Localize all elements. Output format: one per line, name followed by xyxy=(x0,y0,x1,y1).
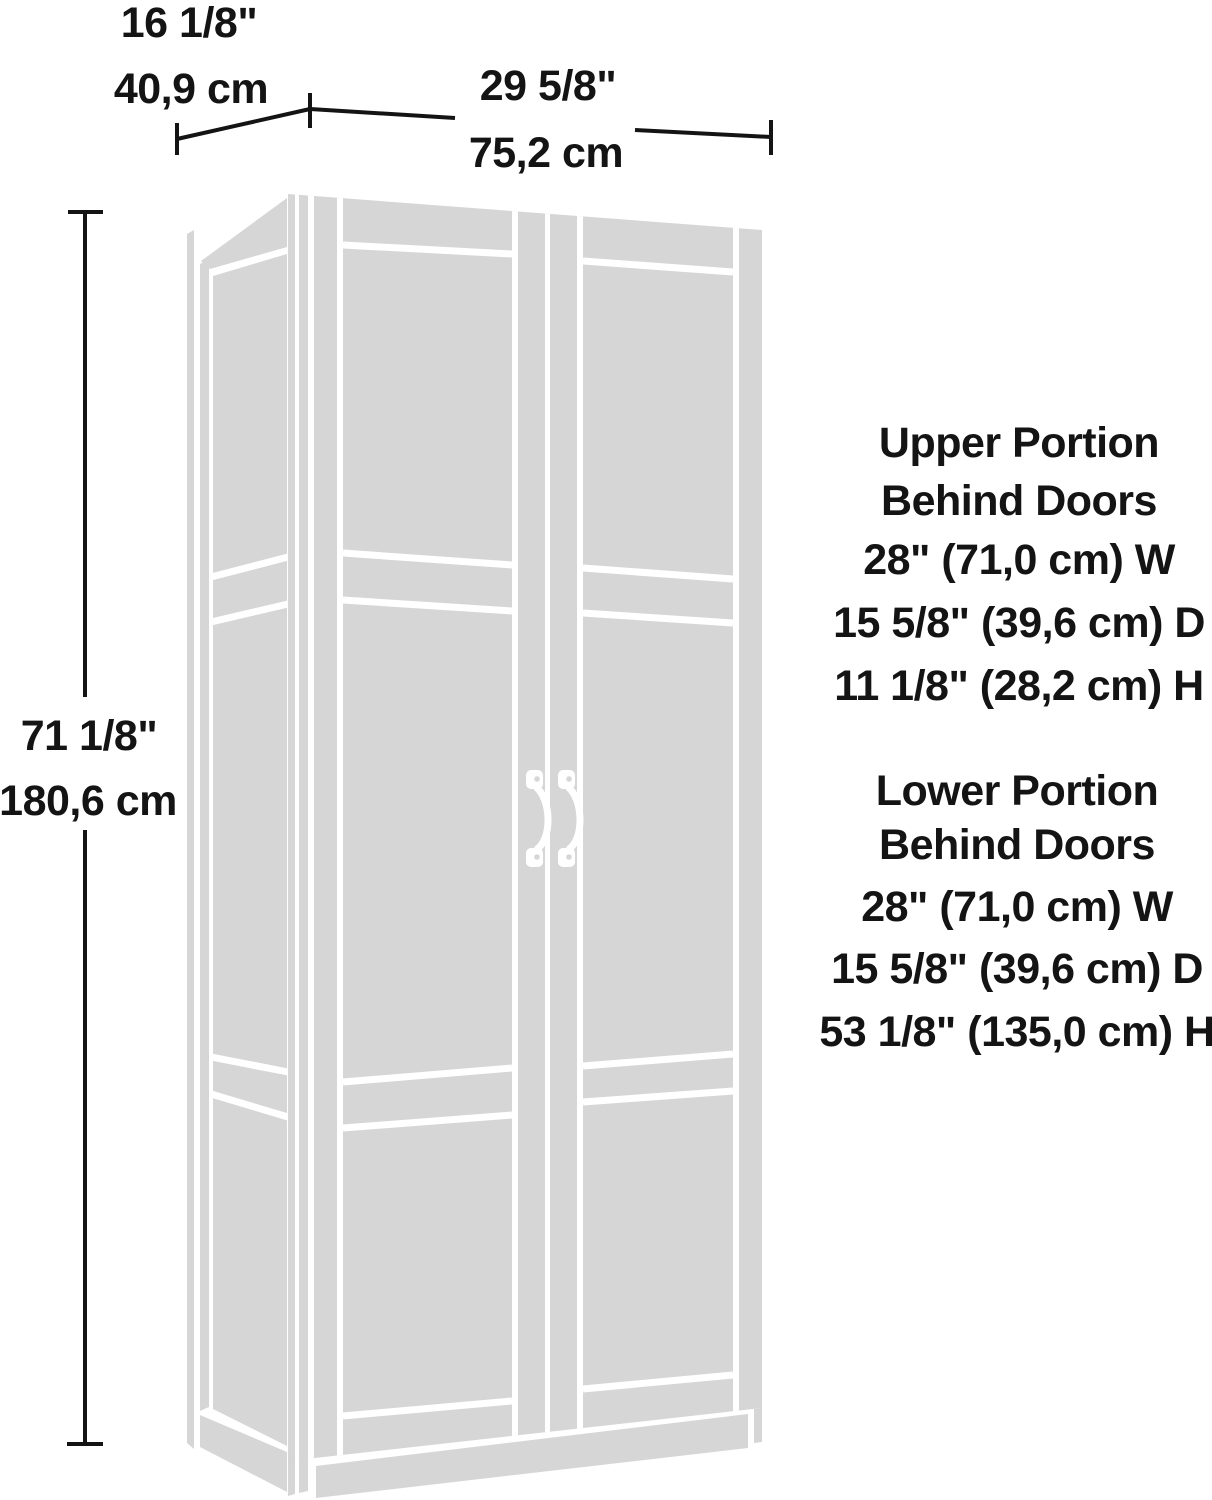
lower-portion-specs: Lower Portion Behind Doors 28" (71,0 cm)… xyxy=(819,767,1212,1056)
upper-portion-specs: Upper Portion Behind Doors 28" (71,0 cm)… xyxy=(833,419,1205,710)
width-cm-label: 75,2 cm xyxy=(469,129,623,177)
depth-inches-label: 16 1/8" xyxy=(121,0,257,47)
cabinet-side-panel xyxy=(187,198,288,1492)
height-cm-label: 180,6 cm xyxy=(0,777,177,825)
upper-portion-subtitle: Behind Doors xyxy=(881,477,1157,525)
lower-portion-width: 28" (71,0 cm) W xyxy=(861,883,1174,931)
cabinet-front-face xyxy=(288,185,762,1496)
upper-portion-width: 28" (71,0 cm) W xyxy=(863,536,1176,584)
cabinet-illustration xyxy=(187,185,762,1498)
upper-portion-depth: 15 5/8" (39,6 cm) D xyxy=(833,599,1205,647)
dimension-diagram: 16 1/8" 40,9 cm 29 5/8" 75,2 cm 71 1/8" … xyxy=(0,0,1212,1500)
upper-portion-title: Upper Portion xyxy=(879,419,1159,467)
height-inches-label: 71 1/8" xyxy=(21,712,157,760)
lower-portion-title: Lower Portion xyxy=(876,767,1159,815)
lower-portion-height: 53 1/8" (135,0 cm) H xyxy=(819,1008,1212,1056)
upper-portion-height: 11 1/8" (28,2 cm) H xyxy=(834,662,1203,710)
lower-portion-depth: 15 5/8" (39,6 cm) D xyxy=(831,945,1203,993)
width-inches-label: 29 5/8" xyxy=(480,62,616,110)
lower-portion-subtitle: Behind Doors xyxy=(879,821,1155,869)
depth-cm-label: 40,9 cm xyxy=(114,65,268,113)
height-dimension-line xyxy=(67,212,103,1444)
